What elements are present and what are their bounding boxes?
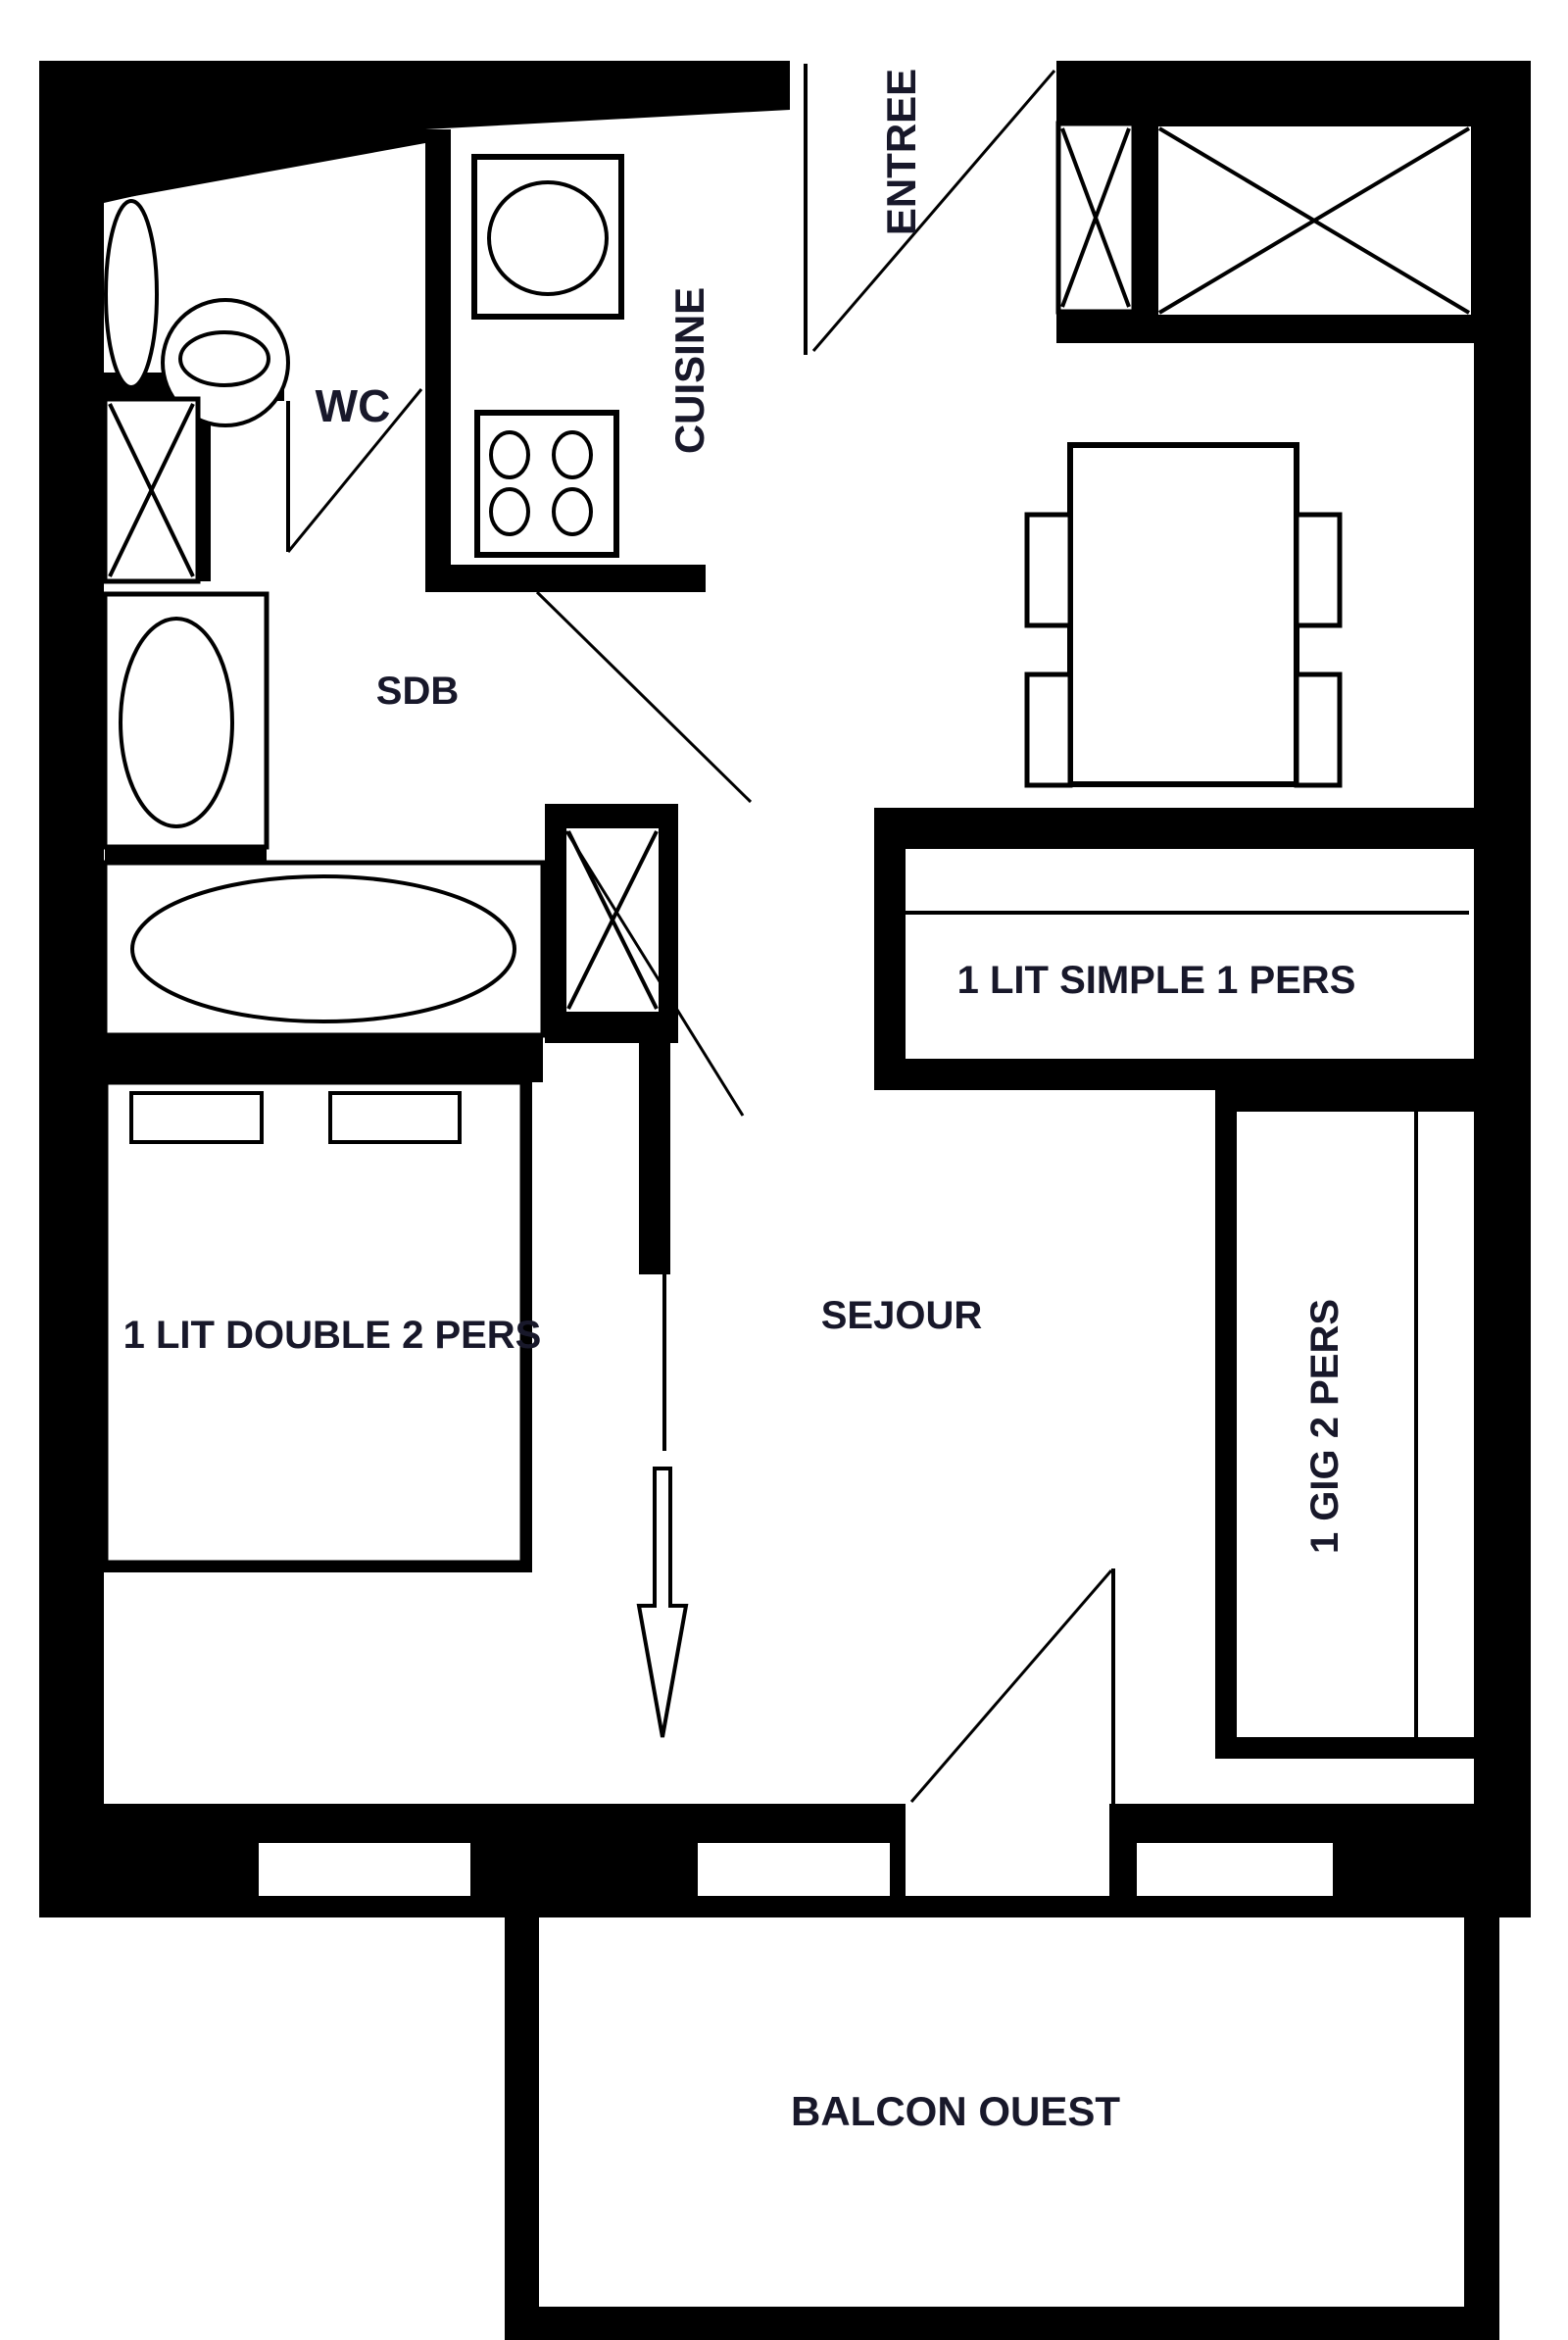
- wall-sejour-divider: [639, 1043, 670, 1274]
- kitchen-sink-basin-icon: [489, 182, 607, 294]
- bed-single-left-bar: [874, 808, 906, 1090]
- window-slot-1: [259, 1843, 470, 1896]
- bed-single-head-bar: [874, 808, 1474, 849]
- chair: [1297, 674, 1340, 785]
- sofa-gig-top-bar: [1215, 1090, 1474, 1112]
- balcony-door-opening: [906, 1804, 1109, 1896]
- wall-top-right: [1056, 61, 1531, 124]
- label-sdb: SDB: [376, 670, 459, 713]
- label-gig: 1 GIG 2 PERS: [1303, 1299, 1347, 1554]
- toilet-seat-icon: [180, 332, 269, 385]
- label-sejour: SEJOUR: [821, 1294, 983, 1337]
- wall-balcony-right: [1464, 1917, 1499, 2340]
- stove-box: [477, 413, 616, 555]
- bathtub-icon: [132, 876, 514, 1021]
- pillow: [330, 1093, 460, 1142]
- wall-kitchen-bottom: [425, 565, 706, 592]
- window-slot-3: [1137, 1843, 1333, 1896]
- washbasin-icon: [121, 619, 232, 826]
- label-balcon: BALCON OUEST: [791, 2088, 1120, 2134]
- burner-icon: [491, 432, 528, 477]
- wall-left-outer: [39, 203, 104, 1823]
- wc-cistern-icon: [106, 201, 157, 387]
- wall-under-bathtub: [88, 1035, 543, 1082]
- sofa-gig-left-bar: [1215, 1090, 1237, 1759]
- burner-icon: [491, 489, 528, 534]
- wall-balcony-bottom: [505, 2307, 1499, 2340]
- wall-balcony-left: [505, 1917, 539, 2340]
- bed-single-foot-bar: [874, 1059, 1474, 1090]
- sofa-gig-bottom-bar: [1215, 1737, 1474, 1759]
- window-slot-2: [698, 1843, 890, 1896]
- burner-icon: [554, 432, 591, 477]
- floor-plan: WC CUISINE ENTREE SDB SEJOUR 1 LIT SIMPL…: [0, 0, 1568, 2340]
- label-cuisine: CUISINE: [666, 287, 712, 454]
- wall-right-outer: [1474, 124, 1531, 1917]
- wall-closet-mid: [1134, 124, 1155, 312]
- chair: [1027, 674, 1070, 785]
- chair: [1297, 515, 1340, 625]
- dining-table: [1070, 445, 1297, 784]
- label-lit-double: 1 LIT DOUBLE 2 PERS: [123, 1314, 542, 1357]
- burner-icon: [554, 489, 591, 534]
- label-entree: ENTREE: [878, 69, 924, 235]
- pillow: [131, 1093, 262, 1142]
- label-lit-simple: 1 LIT SIMPLE 1 PERS: [957, 959, 1356, 1002]
- wall-kitchen-left: [425, 129, 451, 590]
- chair: [1027, 515, 1070, 625]
- label-wc: WC: [316, 380, 391, 431]
